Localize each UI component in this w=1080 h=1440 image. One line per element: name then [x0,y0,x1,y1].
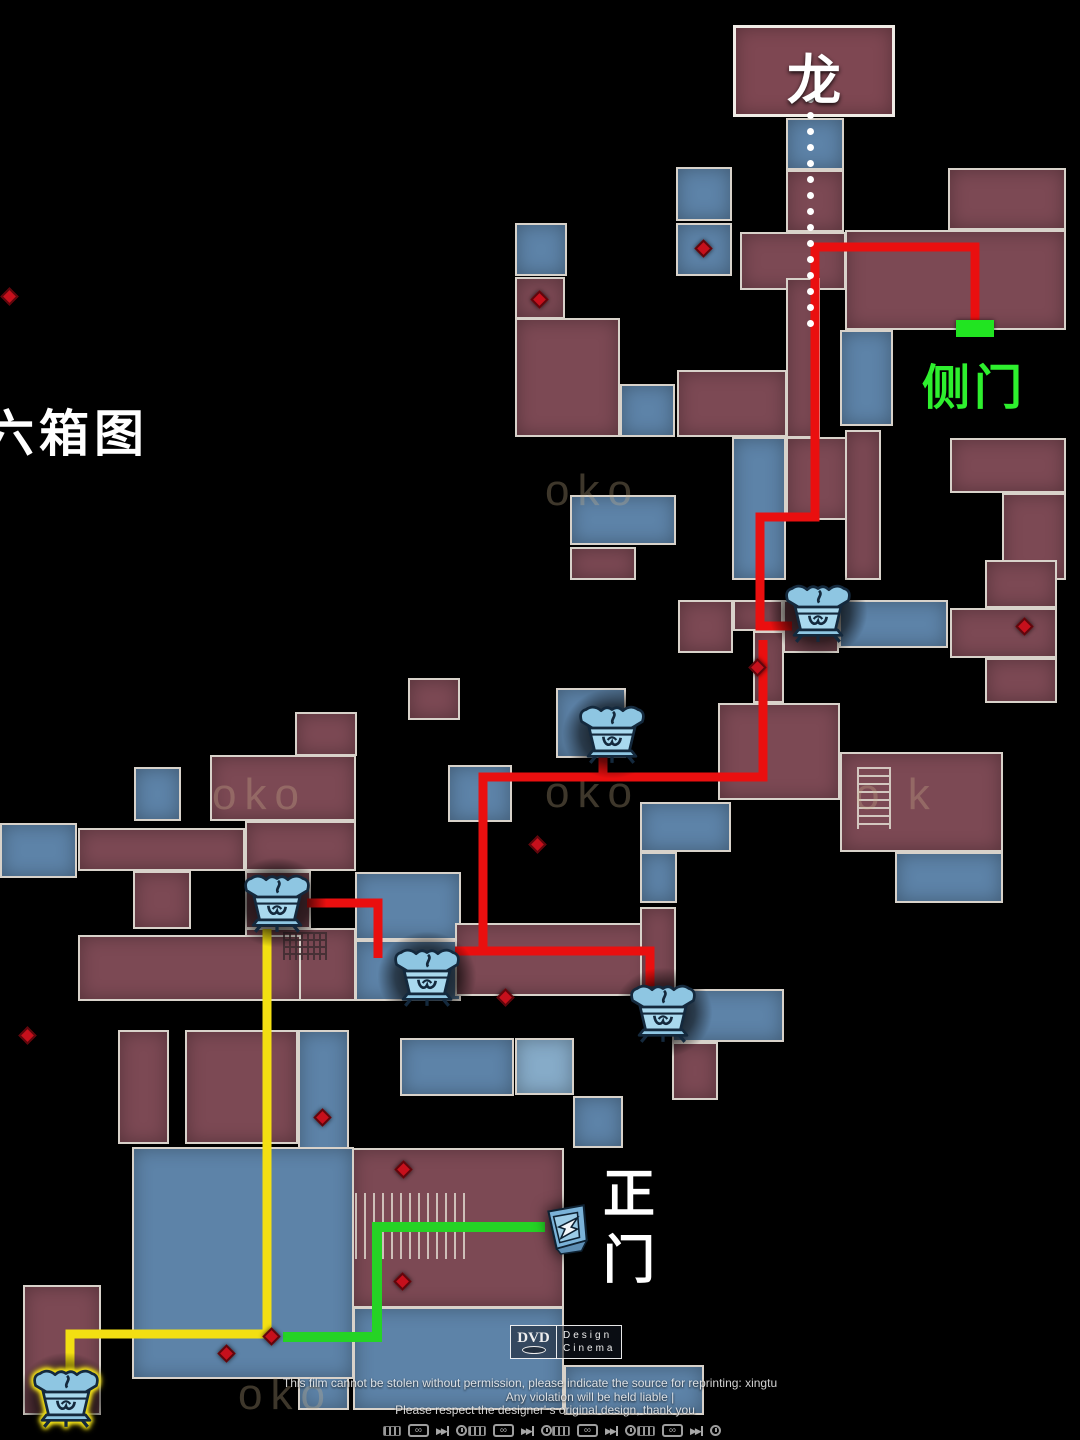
dvd-disc-icon [522,1346,546,1354]
dotted-route-dot [807,176,814,183]
main-gate-door-icon[interactable] [536,1197,594,1255]
next-track-icon[interactable]: ▶▶ [690,1426,703,1436]
loop-icon[interactable]: ∞ [493,1424,514,1437]
dotted-route-dot [807,320,814,327]
game-map-canvas: okookoo kokooko 龙 侧门 六箱图 正门 This film ca… [0,0,1080,1440]
player-control-group: ∞▶▶ [468,1424,552,1437]
dotted-route-dot [807,192,814,199]
cinema-text: Cinema [563,1342,615,1355]
dotted-route-dot [807,144,814,151]
dragon-room-label: 龙 [733,36,895,115]
watermark-line-2: Any violation will be held liable | [0,1390,1080,1404]
dotted-route-dot [807,272,814,279]
dotted-route-dot [807,288,814,295]
map-title: 六箱图 [0,394,149,466]
dvd-logo-text: DVD [517,1331,550,1345]
treasure-jar-icon[interactable] [782,581,854,644]
clock-icon[interactable] [456,1425,467,1436]
treasure-jar-icon[interactable] [576,702,648,765]
player-control-group: ∞▶▶ [383,1424,467,1437]
dotted-route-dot [807,128,814,135]
next-track-icon[interactable]: ▶▶ [521,1426,534,1436]
loop-icon[interactable]: ∞ [577,1424,598,1437]
treasure-jar-icon[interactable] [241,871,313,934]
design-cinema-text: Design Cinema [557,1326,621,1358]
watermark-line-1: This film cannot be stolen without permi… [0,1376,1060,1390]
design-text: Design [563,1329,615,1342]
player-control-group: ∞▶▶ [637,1424,721,1437]
dotted-route-dot [807,304,814,311]
dotted-route-dot [807,208,814,215]
side-door-label: 侧门 [922,348,1026,418]
hifi-badge-icon[interactable] [637,1426,655,1436]
watermark-line-3: Please respect the designer' s original … [0,1403,1080,1417]
dvd-design-cinema-logo: DVD Design Cinema [510,1325,622,1359]
dotted-route-dot [807,240,814,247]
hifi-badge-icon[interactable] [552,1426,570,1436]
loop-icon[interactable]: ∞ [662,1424,683,1437]
clock-icon[interactable] [625,1425,636,1436]
treasure-jar-icon[interactable] [627,981,699,1044]
dotted-route-dot [807,160,814,167]
hifi-badge-icon[interactable] [468,1426,486,1436]
loop-icon[interactable]: ∞ [408,1424,429,1437]
dvd-badge: DVD [511,1326,557,1358]
dotted-route-dot [807,256,814,263]
main-gate-label: 正门 [600,1162,658,1294]
next-track-icon[interactable]: ▶▶ [605,1426,618,1436]
hifi-badge-icon[interactable] [383,1426,401,1436]
side-door-marker[interactable] [956,320,994,337]
treasure-jar-icon[interactable] [391,945,463,1008]
player-control-group: ∞▶▶ [552,1424,636,1437]
next-track-icon[interactable]: ▶▶ [436,1426,449,1436]
clock-icon[interactable] [710,1425,721,1436]
clock-icon[interactable] [541,1425,552,1436]
dotted-route-dot [807,224,814,231]
